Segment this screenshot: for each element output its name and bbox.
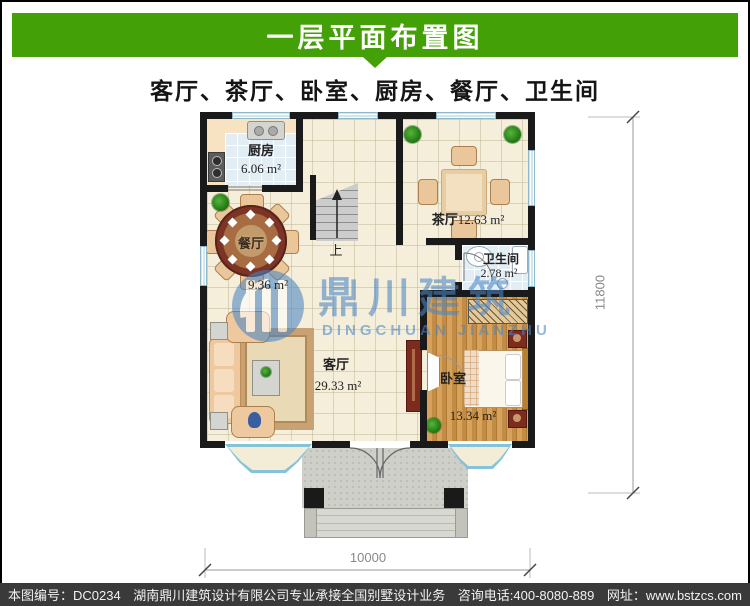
room-area-kitchen: 6.06 m² (221, 161, 301, 177)
room-list-subtitle: 客厅、茶厅、卧室、厨房、餐厅、卫生间 (0, 72, 750, 106)
footer-bar: 本图编号：DC0234 湖南鼎川建筑设计有限公司专业承接全国别墅设计业务 咨询电… (0, 583, 750, 606)
room-label-kitchen: 厨房 (221, 140, 301, 159)
wall-tea-bottom (426, 238, 535, 245)
porch-column-right (444, 488, 464, 508)
footer-plan-number: 本图编号：DC0234 (8, 585, 121, 604)
side-table-top (210, 322, 228, 340)
page-title: 一层平面布置图 (267, 16, 484, 55)
wall-bedroom-left-a (420, 290, 427, 350)
nightstand-bottom (508, 410, 527, 428)
steps-side-left (304, 508, 317, 538)
coffee-table (252, 360, 280, 396)
nightstand-top (508, 330, 527, 348)
armchair-top (226, 311, 270, 343)
room-label-dining: 餐厅 (211, 233, 291, 252)
kitchen-sink (247, 121, 285, 140)
figure-on-sofa (248, 412, 261, 428)
window-tea-right (528, 150, 535, 206)
banner-notch (363, 57, 387, 68)
window-hall (338, 112, 378, 119)
wardrobe (468, 299, 528, 324)
wall-stair-stub (310, 175, 316, 240)
stairs-up-label: 上 (328, 240, 344, 259)
floorplan-page: 一层平面布置图 客厅、茶厅、卧室、厨房、餐厅、卫生间 (0, 0, 750, 606)
living-bay-window (225, 444, 312, 473)
dim-width-label: 10000 (338, 550, 398, 565)
wall-kitchen-bottom-b (262, 185, 303, 192)
wall-bottom-3 (410, 441, 448, 448)
footer-company: 湖南鼎川建筑设计有限公司专业承接全国别墅设计业务 (133, 585, 445, 604)
window-tea (436, 112, 496, 119)
room-label-living: 客厅 (296, 354, 376, 373)
wall-bottom-4 (512, 441, 535, 448)
bedroom-bay-window (448, 444, 512, 469)
footer-website: 网址：www.bstzcs.com (607, 585, 742, 604)
side-table-bottom (210, 412, 228, 430)
wall-bath-left-a (455, 238, 462, 260)
dim-height-label: 11800 (593, 263, 608, 323)
footer-phone: 咨询电话:400-8080-889 (458, 585, 595, 604)
plant-dining (212, 194, 229, 211)
plant-tea-left (404, 126, 421, 143)
room-label-bathroom: 卫生间 (466, 250, 536, 267)
room-area-bathroom: 2.78 m² (464, 266, 534, 281)
room-label-bedroom: 卧室 (430, 368, 476, 387)
window-dining-left (200, 246, 207, 286)
wall-bedroom-top (427, 290, 535, 297)
wall-bottom-2 (312, 441, 350, 448)
wall-kitchen-bottom-a (200, 185, 228, 192)
room-label-tea: 茶厅12.63 m² (398, 209, 538, 228)
room-area-living: 29.33 m² (298, 378, 378, 394)
title-banner: 一层平面布置图 (12, 13, 738, 57)
room-area-bedroom: 13.34 m² (438, 408, 508, 424)
wall-bottom-1 (200, 441, 225, 448)
entrance-steps (310, 508, 462, 538)
steps-side-right (455, 508, 468, 538)
window-kitchen (232, 112, 290, 119)
room-area-dining: 9.36 m² (228, 277, 308, 293)
porch-column-left (304, 488, 324, 508)
wall-bedroom-left-b (420, 390, 427, 448)
plant-tea-right (504, 126, 521, 143)
